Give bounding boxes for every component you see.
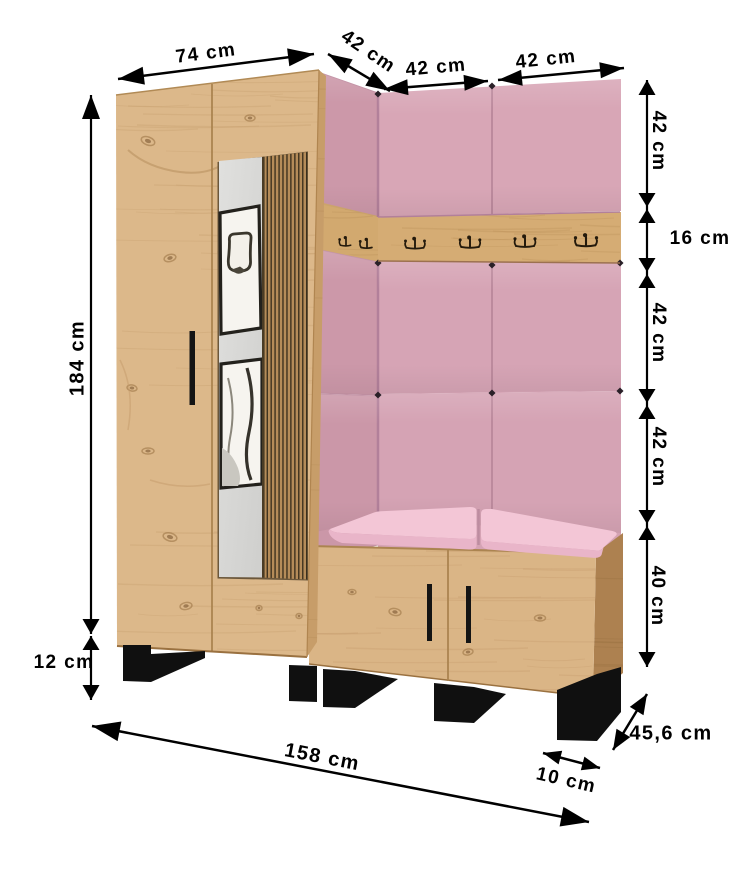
svg-text:42 cm: 42 cm xyxy=(648,427,669,488)
svg-text:40 cm: 40 cm xyxy=(647,566,668,627)
svg-text:12 cm: 12 cm xyxy=(34,652,95,673)
svg-text:184 cm: 184 cm xyxy=(66,320,88,396)
svg-text:16 cm: 16 cm xyxy=(670,228,731,249)
svg-text:42 cm: 42 cm xyxy=(648,303,669,364)
svg-text:42 cm: 42 cm xyxy=(648,111,669,172)
svg-text:45,6 cm: 45,6 cm xyxy=(629,722,712,744)
